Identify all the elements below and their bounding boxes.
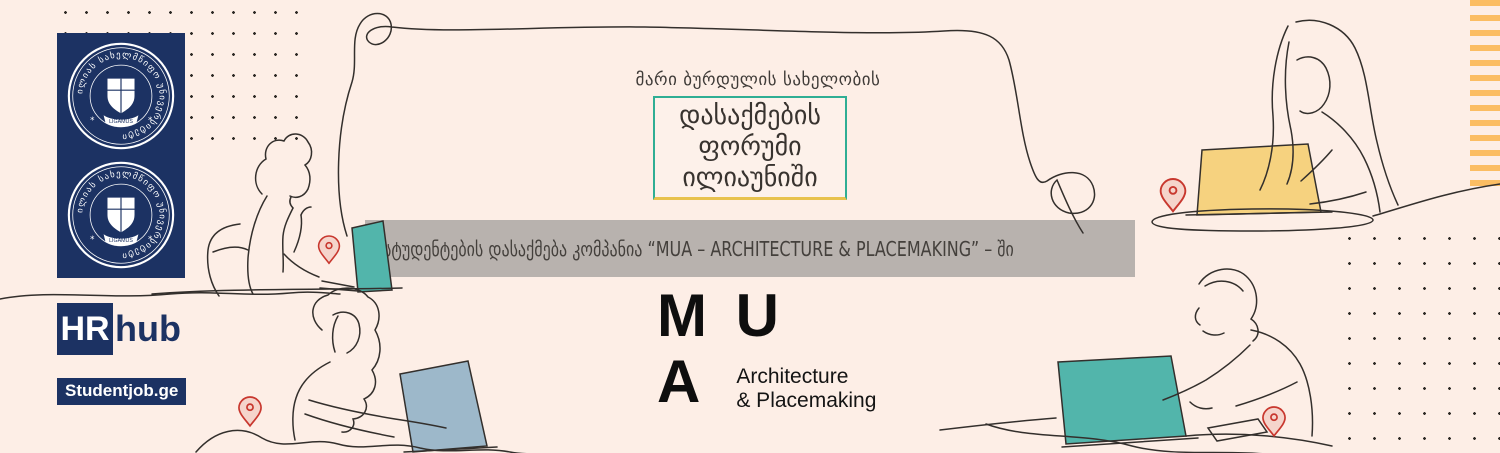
mua-tagline-line2: & Placemaking bbox=[736, 389, 876, 413]
seal-ribbon-text: LIGAMUS bbox=[109, 119, 133, 125]
university-seal-panel: ილიას სახელმწიფო უნივერსიტეტი * * LIGAMU… bbox=[57, 33, 185, 278]
headline-banner: სტუდენტების დასაქმება კომპანია “MUA – AR… bbox=[365, 220, 1135, 277]
mua-tagline: Architecture & Placemaking bbox=[736, 352, 876, 413]
seal-star: * bbox=[148, 116, 153, 126]
hrhub-logo-hr: HR bbox=[57, 303, 113, 355]
person-bottom-left-illustration bbox=[196, 288, 558, 453]
event-banner: სტუდენტების დასაქმება კომპანია “MUA – AR… bbox=[0, 0, 1500, 453]
mua-tagline-line1: Architecture bbox=[736, 365, 876, 389]
mua-logo-a: A bbox=[657, 352, 700, 413]
seal-star: * bbox=[90, 235, 95, 245]
headline-text: სტუდენტების დასაქმება კომპანია “MUA – AR… bbox=[383, 237, 1014, 261]
university-seal-icon: ილიას სახელმწიფო უნივერსიტეტი * * LIGAMU… bbox=[65, 40, 177, 152]
orange-stripes-decoration bbox=[1470, 0, 1500, 192]
mua-logo: M U A Architecture & Placemaking bbox=[657, 288, 876, 413]
university-seal-icon: ილიას სახელმწიფო უნივერსიტეტი * * LIGAMU… bbox=[65, 159, 177, 271]
person-top-right-illustration bbox=[1152, 20, 1500, 231]
person-bottom-right-illustration bbox=[940, 269, 1352, 453]
seal-ribbon-text: LIGAMUS bbox=[109, 238, 133, 244]
forum-eyebrow-text: მარი ბურდულის სახელობის bbox=[598, 70, 918, 90]
forum-title-line3: ილიაუნიში bbox=[682, 163, 817, 194]
hrhub-logo: HR hub bbox=[57, 303, 181, 355]
dot-grid-bottom-right bbox=[1337, 226, 1500, 453]
hrhub-logo-hub: hub bbox=[115, 303, 181, 355]
seal-star: * bbox=[148, 235, 153, 245]
studentjob-logo: Studentjob.ge bbox=[57, 378, 186, 405]
seal-star: * bbox=[90, 116, 95, 126]
forum-title-box: დასაქმების ფორუმი ილიაუნიში bbox=[653, 96, 847, 200]
mua-logo-mu: M U bbox=[657, 288, 876, 344]
forum-title-line1: დასაქმების bbox=[679, 101, 821, 132]
forum-title-line2: ფორუმი bbox=[698, 132, 801, 163]
